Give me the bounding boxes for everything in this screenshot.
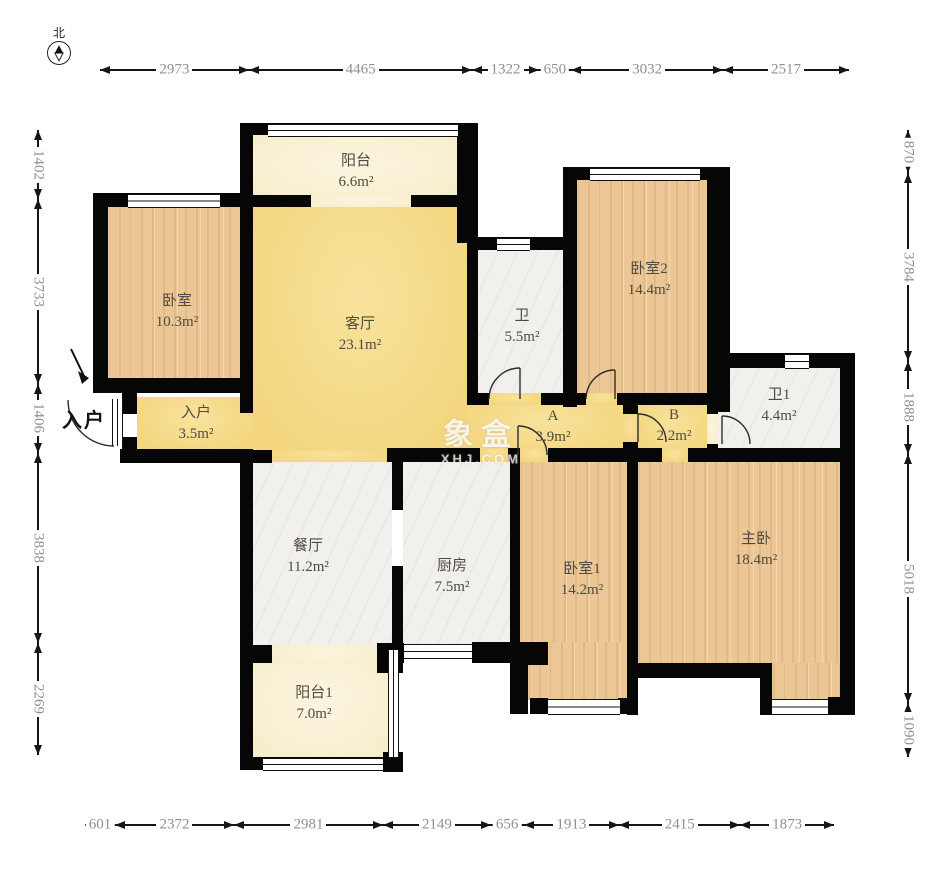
room-label-kitchen: 厨房7.5m²	[435, 556, 470, 598]
room-name: 阳台	[339, 151, 374, 172]
dimension-line	[34, 130, 42, 140]
dimension-line	[571, 66, 581, 74]
dimension-right-1: 3784	[900, 249, 917, 285]
dimension-right-2: 1888	[900, 389, 917, 425]
wall	[120, 449, 253, 463]
wall	[392, 566, 403, 645]
dimension-line	[234, 821, 244, 829]
dimension-left-3: 3838	[30, 530, 47, 566]
wall	[392, 450, 403, 510]
entry-arrow-icon	[71, 349, 84, 376]
floor-patch	[707, 414, 718, 444]
window-symbol	[263, 758, 383, 771]
room-label-bathroom-1: 卫14.4m²	[762, 385, 797, 427]
dimension-line	[224, 821, 234, 829]
wall	[623, 402, 638, 414]
dimension-line	[34, 633, 42, 643]
wall	[240, 645, 272, 663]
dimension-bottom-1: 2372	[156, 817, 192, 834]
dimension-top-3: 650	[541, 62, 570, 79]
room-area: 11.2m²	[287, 557, 329, 578]
room-name: A	[536, 406, 571, 427]
wall	[548, 448, 662, 462]
room-label-entry: 入户3.5m²	[179, 403, 214, 445]
window-symbol	[772, 699, 828, 715]
dimension-left-4: 2269	[30, 681, 47, 717]
dimension-line	[34, 199, 42, 209]
room-label-balcony-1: 阳台17.0m²	[295, 683, 333, 725]
dimension-line	[824, 821, 834, 829]
dimension-top-4: 3032	[629, 62, 665, 79]
wall	[510, 642, 528, 714]
wall	[240, 123, 253, 413]
wall	[828, 697, 855, 715]
room-bedroom-1	[520, 460, 627, 645]
dimension-left-1: 3733	[30, 274, 47, 310]
dimension-right-3: 5018	[900, 561, 917, 597]
floor-patch	[520, 448, 548, 462]
room-label-hall-a: A3.9m²	[536, 406, 571, 448]
wall	[760, 663, 772, 715]
dimension-bottom-2: 2981	[290, 817, 326, 834]
wall	[628, 663, 762, 678]
dimension-line	[609, 821, 619, 829]
wall	[688, 448, 855, 462]
room-name: 主卧	[735, 529, 777, 550]
room-area: 7.5m²	[435, 577, 470, 598]
dimension-line	[249, 66, 259, 74]
room-name: B	[657, 405, 692, 426]
dimension-bottom-5: 1913	[553, 817, 589, 834]
compass-needle-icon	[47, 41, 71, 65]
window-symbol	[785, 354, 809, 369]
room-area: 7.0m²	[295, 704, 333, 725]
room-label-bathroom: 卫5.5m²	[505, 306, 540, 348]
compass: 北	[44, 26, 74, 65]
window-symbol	[112, 399, 123, 446]
dimension-line	[904, 693, 912, 703]
dimension-line	[904, 444, 912, 454]
wall	[240, 450, 253, 663]
wall	[253, 195, 311, 207]
compass-north-label: 北	[44, 26, 74, 40]
dimension-line	[34, 189, 42, 199]
floor-patch	[311, 195, 411, 207]
wall	[93, 193, 108, 393]
dimension-right-0: 870	[900, 137, 917, 166]
room-area: 23.1m²	[339, 335, 381, 356]
dimension-top-0: 2973	[156, 62, 192, 79]
floor-patch	[272, 645, 377, 663]
dimension-line	[383, 821, 393, 829]
window-symbol	[388, 650, 399, 757]
wall	[541, 393, 586, 405]
dimension-line	[740, 821, 750, 829]
wall	[510, 448, 520, 667]
dimension-line	[524, 821, 534, 829]
dimension-line	[904, 351, 912, 361]
dimension-line	[462, 66, 472, 74]
room-name: 餐厅	[287, 536, 329, 557]
dimension-line	[723, 66, 733, 74]
wall	[411, 195, 457, 207]
dimension-line	[34, 374, 42, 384]
window-symbol	[590, 168, 700, 181]
dimension-line	[100, 66, 110, 74]
dimension-top-1: 4465	[343, 62, 379, 79]
dimension-line	[904, 747, 912, 757]
window-symbol	[497, 238, 530, 251]
wall	[93, 378, 242, 393]
dimension-right-4: 1090	[900, 712, 917, 748]
dimension-left-2: 1406	[30, 400, 47, 436]
wall	[707, 368, 718, 414]
dimension-line	[34, 643, 42, 653]
room-name: 客厅	[339, 314, 381, 335]
wall	[563, 167, 577, 407]
room-label-living-room: 客厅23.1m²	[339, 314, 381, 356]
dimension-top-5: 2517	[768, 62, 804, 79]
dimension-line	[34, 453, 42, 463]
room-area: 10.3m²	[156, 312, 198, 333]
wall	[122, 393, 137, 414]
room-area: 14.4m²	[628, 280, 670, 301]
dimension-line	[904, 173, 912, 183]
floor-plan-canvas: 阳台6.6m²卧室10.3m²客厅23.1m²入户3.5m²卫5.5m²卧室21…	[0, 0, 948, 893]
floor-patch	[586, 393, 617, 405]
room-name: 厨房	[435, 556, 470, 577]
dimension-line	[839, 66, 849, 74]
dimension-line	[373, 821, 383, 829]
dimension-line	[904, 361, 912, 371]
floor-patch	[762, 663, 840, 700]
room-area: 2.2m²	[657, 426, 692, 447]
room-area: 5.5m²	[505, 327, 540, 348]
dimension-line	[529, 66, 539, 74]
room-name: 入户	[179, 403, 214, 424]
room-label-balcony-top: 阳台6.6m²	[339, 151, 374, 193]
wall	[618, 698, 638, 714]
room-area: 3.5m²	[179, 424, 214, 445]
wall	[840, 353, 855, 715]
room-label-bedroom-2: 卧室214.4m²	[628, 259, 670, 301]
floor-patch	[662, 448, 688, 462]
room-name: 阳台1	[295, 683, 333, 704]
dimension-bottom-7: 1873	[769, 817, 805, 834]
room-kitchen	[403, 460, 510, 645]
dimension-line	[730, 821, 740, 829]
dimension-line	[472, 66, 482, 74]
wall	[467, 393, 489, 405]
entry-marker-label: 入户	[62, 404, 106, 433]
dimension-line	[904, 454, 912, 464]
room-name: 卫1	[762, 385, 797, 406]
floor-patch	[623, 414, 638, 442]
room-area: 3.9m²	[536, 427, 571, 448]
room-name: 卧室1	[561, 559, 603, 580]
room-name: 卫	[505, 306, 540, 327]
dimension-line	[34, 443, 42, 453]
room-label-bedroom-left: 卧室10.3m²	[156, 291, 198, 333]
dimension-line	[619, 821, 629, 829]
dimension-line	[115, 821, 125, 829]
room-label-dining-room: 餐厅11.2m²	[287, 536, 329, 578]
wall	[472, 642, 512, 663]
dimension-bottom-0: 601	[86, 817, 115, 834]
room-area: 18.4m²	[735, 550, 777, 571]
dimension-line	[239, 66, 249, 74]
room-label-master-bedroom: 主卧18.4m²	[735, 529, 777, 571]
dimension-line	[713, 66, 723, 74]
dimension-left-0: 1402	[30, 147, 47, 183]
room-name: 卧室2	[628, 259, 670, 280]
room-area: 14.2m²	[561, 580, 603, 601]
window-symbol	[404, 644, 472, 659]
room-name: 卧室	[156, 291, 198, 312]
floor-patch	[272, 450, 387, 462]
room-label-hall-b: B2.2m²	[657, 405, 692, 447]
entry-arrow-head-icon	[78, 371, 89, 384]
dimension-bottom-4: 656	[493, 817, 522, 834]
wall	[467, 195, 478, 405]
dimension-line	[481, 821, 491, 829]
dimension-line	[34, 384, 42, 394]
dimension-bottom-3: 2149	[419, 817, 455, 834]
room-label-bedroom-1: 卧室114.2m²	[561, 559, 603, 601]
window-symbol	[548, 699, 620, 715]
dimension-bottom-6: 2415	[662, 817, 698, 834]
dimension-top-2: 1322	[488, 62, 524, 79]
room-area: 4.4m²	[762, 406, 797, 427]
dimension-line	[34, 745, 42, 755]
floor-patch	[480, 448, 508, 462]
window-symbol	[268, 124, 458, 137]
floor-patch	[489, 393, 541, 405]
wall	[707, 353, 855, 368]
wall	[530, 698, 548, 714]
room-area: 6.6m²	[339, 172, 374, 193]
window-symbol	[128, 194, 220, 208]
